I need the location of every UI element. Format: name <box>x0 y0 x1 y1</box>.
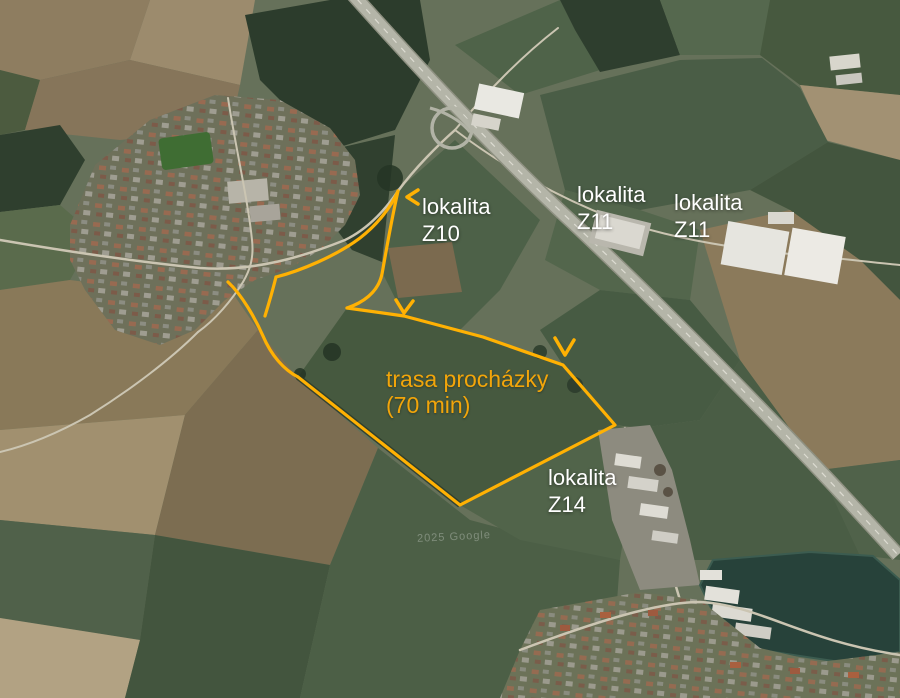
route-start-spur-segment <box>265 277 276 316</box>
label-lokalita-z11-west-line1: lokalita <box>577 181 645 208</box>
label-route-caption: trasa procházky (70 min) <box>386 366 548 418</box>
label-route-caption-line2: (70 min) <box>386 392 548 418</box>
label-lokalita-z14: lokalita Z14 <box>548 464 616 518</box>
label-lokalita-z11-west: lokalita Z11 <box>577 181 645 235</box>
route-outbound-segment <box>276 191 398 277</box>
label-lokalita-z11-east: lokalita Z11 <box>674 189 742 243</box>
label-lokalita-z11-east-line2: Z11 <box>674 216 742 243</box>
label-lokalita-z10-line2: Z10 <box>422 220 490 247</box>
route-z10-descent-segment <box>347 191 398 308</box>
label-lokalita-z10-line1: lokalita <box>422 193 490 220</box>
mid-route-arrow-icon <box>396 300 413 313</box>
route-overlay <box>0 0 900 698</box>
east-route-arrow-icon <box>555 338 574 355</box>
annotated-satellite-map: lokalita Z10 lokalita Z11 lokalita Z11 l… <box>0 0 900 698</box>
route-return-segment <box>228 282 298 377</box>
label-lokalita-z11-east-line1: lokalita <box>674 189 742 216</box>
label-lokalita-z10: lokalita Z10 <box>422 193 490 247</box>
label-lokalita-z14-line2: Z14 <box>548 491 616 518</box>
label-lokalita-z14-line1: lokalita <box>548 464 616 491</box>
z10-arrow-icon <box>407 190 418 204</box>
label-lokalita-z11-west-line2: Z11 <box>577 208 645 235</box>
label-route-caption-line1: trasa procházky <box>386 366 548 392</box>
